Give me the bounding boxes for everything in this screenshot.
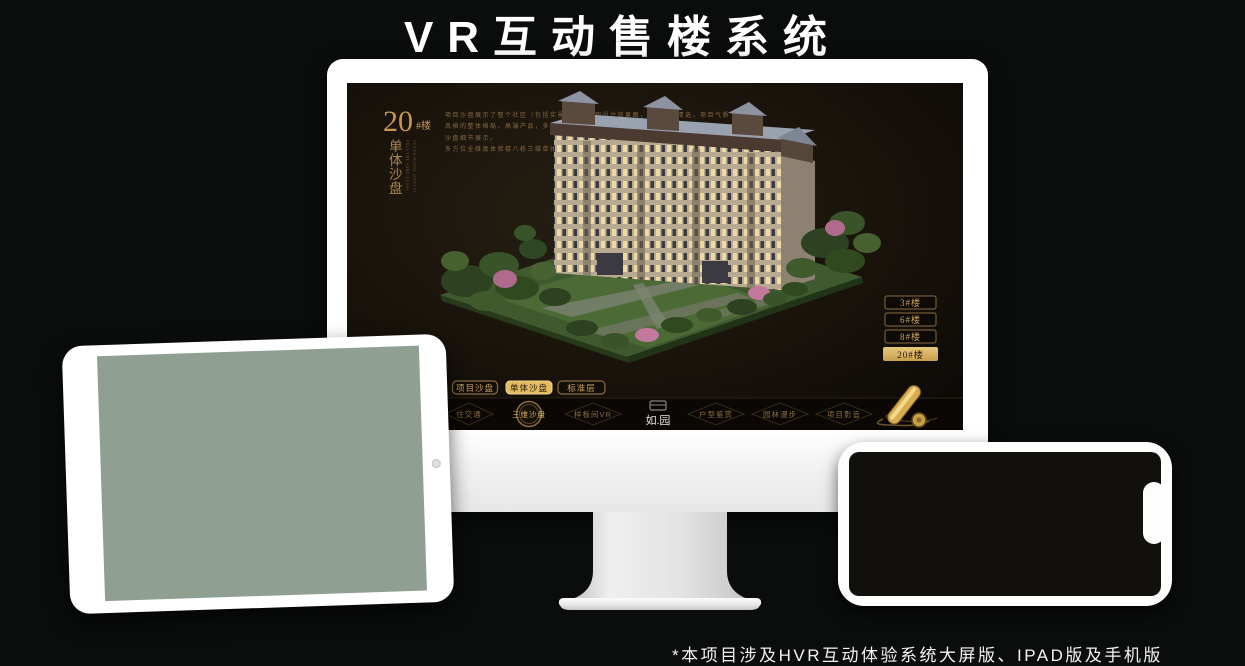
svg-text:沙盘细节展示。: 沙盘细节展示。 [445,134,498,142]
svg-text:8#楼: 8#楼 [900,331,921,342]
svg-text:20#楼: 20#楼 [897,349,924,360]
svg-text:如.园: 如.园 [646,413,671,427]
svg-text:园林漫步: 园林漫步 [763,409,797,419]
svg-text:项目影音: 项目影音 [827,409,861,419]
svg-text:单体沙盘: 单体沙盘 [389,139,403,196]
svg-text:3#楼: 3#楼 [900,297,921,308]
svg-text:户型鉴赏: 户型鉴赏 [699,409,733,419]
svg-text:TOWER MODEL DISPLAY: TOWER MODEL DISPLAY [412,140,416,193]
svg-text:三维沙盘: 三维沙盘 [512,409,546,419]
svg-text:住交通: 住交通 [456,409,482,419]
svg-text:FULL THE SAND CLASS: FULL THE SAND CLASS [405,140,409,191]
svg-text:#楼: #楼 [416,119,431,132]
svg-text:标准层: 标准层 [567,383,596,393]
svg-text:6#楼: 6#楼 [900,314,921,325]
svg-text:单体沙盘: 单体沙盘 [510,383,548,393]
svg-text:样板间VR: 样板间VR [574,409,612,419]
svg-text:项目沙盘: 项目沙盘 [456,383,494,393]
svg-text:20: 20 [383,105,413,138]
